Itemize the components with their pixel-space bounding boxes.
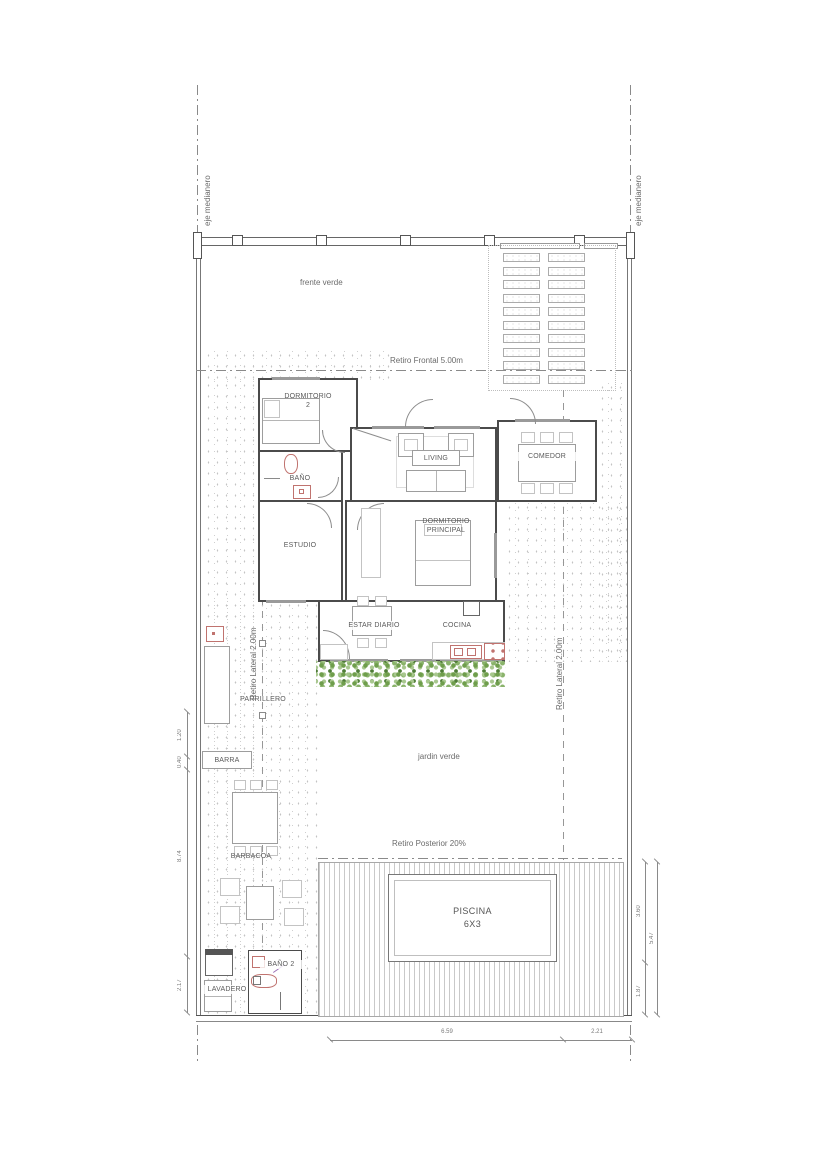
paver [548, 375, 585, 384]
fence-column [316, 235, 327, 246]
frente-verde-label: frente verde [300, 278, 343, 287]
eje-medianero-label-left: eje medianero [203, 148, 212, 226]
stove-icon [484, 643, 505, 660]
fence-column [400, 235, 411, 246]
fridge-icon [463, 601, 480, 616]
window [434, 426, 480, 429]
paver [503, 334, 540, 343]
paver [548, 280, 585, 289]
wardrobe-icon [361, 508, 381, 578]
dim-label: 6.59 [435, 1029, 459, 1035]
retiro-frontal-label: Retiro Frontal 5.00m [390, 356, 463, 365]
lounge-chair-icon [220, 906, 240, 924]
door-arc-comedor [510, 398, 536, 424]
tub-divider [205, 996, 231, 997]
setback-marker [259, 712, 266, 719]
paver [548, 334, 585, 343]
dim-label: 5.47 [649, 925, 655, 951]
driveway-pavers [503, 253, 585, 384]
dim-label: 2.17 [177, 972, 183, 998]
fence-column [232, 235, 243, 246]
paver [503, 267, 540, 276]
paver [548, 361, 585, 370]
chair-icon [357, 596, 369, 606]
room-label-cocina: COCINA [430, 621, 484, 630]
paver [503, 361, 540, 370]
bed-linen-line [416, 560, 470, 561]
floor-plan-canvas: eje medianero eje medianero frente verde… [0, 0, 828, 1171]
kitchen-counter [320, 644, 348, 660]
paver [548, 307, 585, 316]
chair-icon [521, 483, 535, 494]
sofa-divider [436, 471, 437, 491]
dim-label: 3.60 [636, 898, 642, 924]
chair-icon [266, 780, 278, 790]
room-label-lavadero: LAVADERO [203, 985, 251, 994]
dimension-line-right-inner [645, 862, 646, 1015]
retiro-frontal-line [196, 370, 632, 371]
parrillero-counter [204, 646, 230, 724]
shower-line [264, 478, 280, 479]
paver [503, 321, 540, 330]
chair-icon [521, 432, 535, 443]
hedge-plants [316, 661, 506, 687]
toilet-icon [284, 454, 298, 474]
lounge-chair-icon [282, 880, 302, 898]
lounge-table-icon [246, 886, 274, 920]
retiro-lateral-label-left: Retiro Lateral 2.00m [249, 605, 258, 700]
jardin-verde-label: jardin verde [418, 752, 460, 761]
room-estudio [258, 500, 343, 602]
paver [503, 253, 540, 262]
paver [503, 294, 540, 303]
sink-basin [454, 648, 463, 656]
paver [503, 280, 540, 289]
dim-label: 8.74 [177, 842, 183, 870]
chair-icon [250, 780, 262, 790]
paver [548, 267, 585, 276]
chair-icon [540, 483, 554, 494]
dim-label: 1.20 [177, 722, 183, 748]
dim-label: 1.87 [636, 978, 642, 1004]
shower-screen [280, 992, 281, 1010]
dimension-line-bottom [330, 1040, 632, 1041]
paver [548, 294, 585, 303]
chair-icon [375, 638, 387, 648]
room-label-parrillero: PARRILLERO [232, 695, 294, 704]
door-arc-entry [405, 399, 433, 427]
pool: PISCINA 6X3 [388, 874, 557, 962]
room-label-bano: BAÑO [280, 474, 320, 483]
room-label-estudio: ESTUDIO [270, 541, 330, 550]
lot-wall-right [627, 237, 632, 1022]
window [494, 533, 497, 578]
chair-icon [234, 780, 246, 790]
lounge-chair-icon [220, 878, 240, 896]
room-label-living: LIVING [412, 450, 460, 466]
ground-texture [204, 350, 390, 380]
retiro-lateral-label-right: Retiro Lateral 2.00m [555, 615, 564, 710]
fence-pier [193, 232, 202, 259]
dining-table-icon [518, 444, 576, 482]
sink-drain [299, 489, 304, 494]
room-label-comedor: COMEDOR [518, 452, 576, 461]
ground-texture [505, 502, 630, 662]
retiro-posterior-line [318, 858, 622, 859]
paver [548, 348, 585, 357]
chair-icon [357, 638, 369, 648]
chair-icon [540, 432, 554, 443]
chair-icon [559, 432, 573, 443]
paver [548, 253, 585, 262]
room-label-dormitorio-principal: DORMITORIO PRINCIPAL [398, 517, 494, 535]
eje-medianero-label-right: eje medianero [634, 148, 643, 226]
sink-basin [467, 648, 476, 656]
window [272, 377, 320, 380]
room-label-piscina: PISCINA 6X3 [453, 905, 492, 930]
washer-top [205, 949, 233, 955]
dim-label: 2.21 [586, 1029, 608, 1035]
barbacoa-table-icon [232, 792, 278, 844]
grill-dot [212, 632, 215, 635]
chair-icon [375, 596, 387, 606]
lot-wall-left [196, 237, 201, 1022]
setback-marker [259, 640, 266, 647]
retiro-posterior-label: Retiro Posterior 20% [392, 839, 466, 848]
room-label-bano2: BAÑO 2 [260, 960, 302, 969]
room-label-barbacoa: BARBACOA [224, 852, 278, 861]
paver [503, 348, 540, 357]
bed-linen-line [263, 420, 319, 421]
paver [503, 307, 540, 316]
window [266, 600, 306, 603]
paver [503, 375, 540, 384]
lounge-chair-icon [284, 908, 304, 926]
grill-icon [206, 626, 224, 642]
chair-icon [559, 483, 573, 494]
fence-pier [626, 232, 635, 259]
toilet-tank [253, 976, 261, 985]
dimension-line-right-outer [657, 862, 658, 1015]
room-label-estar-diario: ESTAR DIARIO [338, 621, 410, 630]
dim-label: 0.40 [177, 750, 183, 774]
room-label-barra: BARRA [202, 751, 252, 769]
room-label-dormitorio2: DORMITORIO 2 [272, 392, 344, 410]
paver [548, 321, 585, 330]
